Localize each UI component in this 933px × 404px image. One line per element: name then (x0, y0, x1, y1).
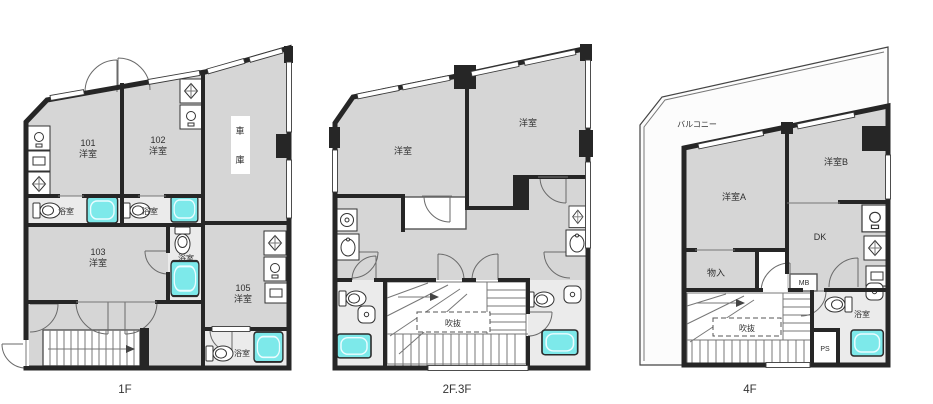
bathtub (254, 332, 283, 362)
room-left-label: 洋室 (394, 145, 412, 156)
closet-label: 物入 (707, 267, 725, 278)
floor-2f3f: 洋室 洋室 吹抜 2F.3F (329, 44, 593, 396)
meter-box-label: MB (799, 280, 810, 287)
washbasin (337, 234, 359, 260)
stove (864, 236, 886, 260)
stove (180, 79, 202, 103)
room-a-label: 洋室A (722, 191, 746, 202)
room-105-number: 105 (235, 283, 250, 293)
room-102-number: 102 (150, 135, 165, 145)
washbasin-small (358, 306, 375, 323)
bath-label: 浴室 (234, 348, 250, 358)
bathtub (542, 330, 578, 355)
stove (569, 206, 587, 228)
bathtub (337, 334, 371, 358)
room-102-label: 洋室 (149, 145, 167, 156)
room-103-number: 103 (90, 247, 105, 257)
bathtub (851, 330, 883, 356)
pipe-space-label: PS (820, 346, 830, 353)
floor-4f: バルコニー 洋室A 洋室B DK 物入 MB 吹抜 PS 浴室 4F (640, 47, 891, 396)
bath-label: 浴室 (142, 206, 158, 216)
void-label: 吹抜 (445, 318, 461, 328)
bath-label: 浴室 (854, 309, 870, 319)
garage-label-2: 庫 (235, 154, 244, 165)
bath-label: 浴室 (178, 253, 194, 263)
floor-caption-1f: 1F (118, 384, 131, 396)
washbasin-small (564, 286, 581, 303)
washer (337, 209, 357, 231)
room-101-number: 101 (80, 138, 95, 148)
floor-1f: 101 洋室 102 洋室 車 庫 浴室 浴室 浴室 浴室 103 洋室 105… (2, 46, 293, 396)
sink (28, 126, 50, 150)
room-b-label: 洋室B (824, 156, 848, 167)
toilet (206, 346, 233, 361)
room-101-label: 洋室 (79, 148, 97, 159)
sink (264, 257, 286, 281)
floor-caption-4f: 4F (743, 384, 756, 396)
floorplan-svg: 101 洋室 102 洋室 車 庫 浴室 浴室 浴室 浴室 103 洋室 105… (0, 0, 933, 404)
floorplan-canvas: 101 洋室 102 洋室 車 庫 浴室 浴室 浴室 浴室 103 洋室 105… (0, 0, 933, 404)
toilet (825, 297, 852, 312)
toilet (527, 292, 554, 307)
garage-label-1: 車 (235, 125, 244, 136)
stairs-1f (43, 330, 140, 366)
bathtub (171, 196, 198, 222)
washbasin (566, 230, 588, 256)
balcony-label: バルコニー (677, 120, 717, 129)
room-105-label: 洋室 (234, 293, 252, 304)
room-right-label: 洋室 (519, 117, 537, 128)
floor-caption-2f3f: 2F.3F (443, 384, 472, 396)
dk-label: DK (814, 232, 827, 242)
kitchen-sink (862, 205, 888, 232)
sink (180, 105, 202, 129)
stove (264, 231, 286, 255)
cabinet (265, 283, 287, 303)
closet-2f (404, 197, 466, 229)
bathtub (87, 197, 118, 223)
room-103-label: 洋室 (89, 257, 107, 268)
toilet (339, 291, 366, 306)
bath-label: 浴室 (58, 206, 74, 216)
cabinet (28, 151, 50, 171)
bathtub (171, 261, 199, 296)
toilet (33, 203, 60, 218)
stove (28, 172, 50, 196)
toilet (175, 227, 190, 254)
rooms-101-102 (28, 75, 203, 196)
void-label: 吹抜 (739, 323, 755, 333)
